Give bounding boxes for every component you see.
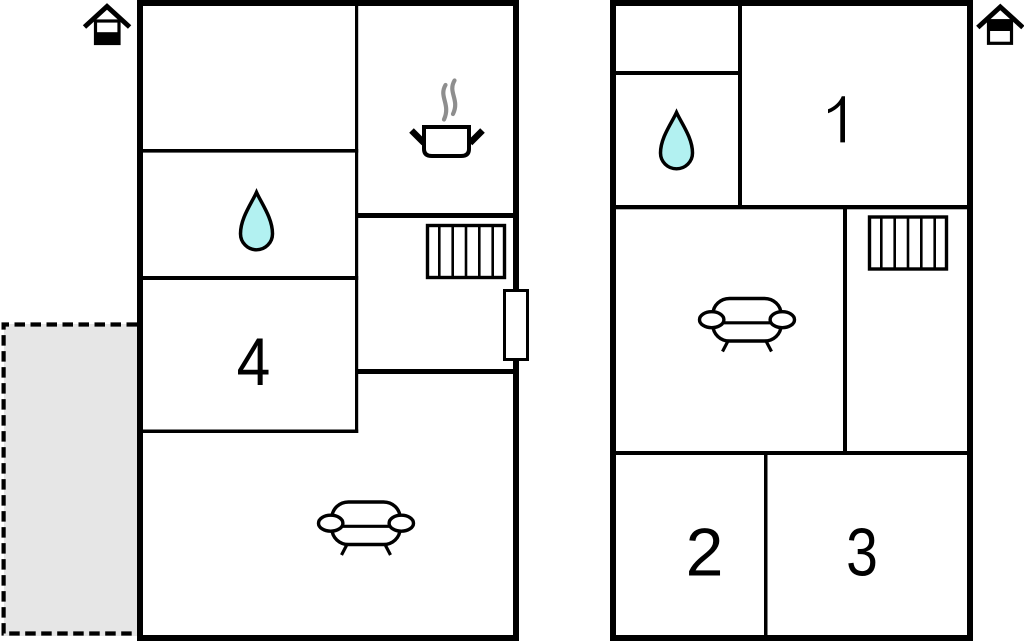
svg-text:2: 2 <box>686 514 724 590</box>
svg-text:4: 4 <box>237 324 271 400</box>
svg-text:3: 3 <box>846 515 878 591</box>
